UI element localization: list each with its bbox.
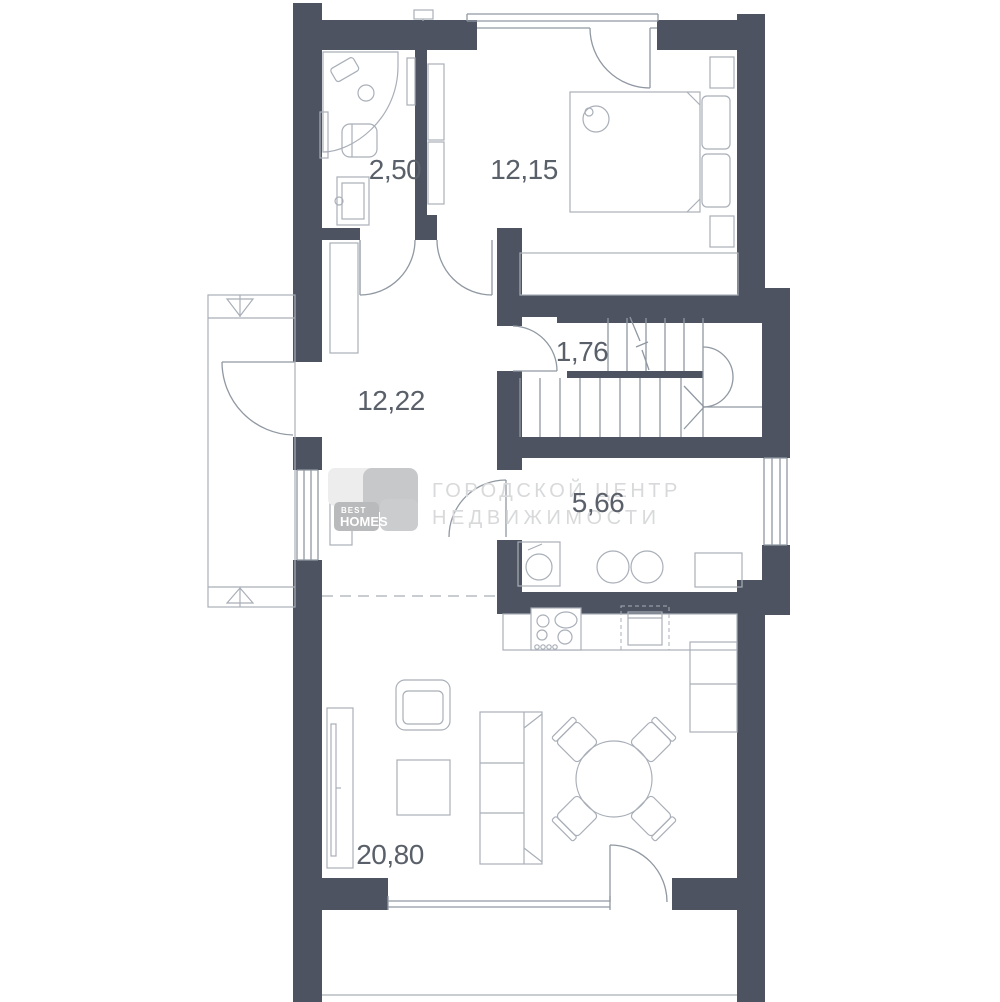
dining-chair — [630, 717, 677, 764]
living-room-window — [388, 896, 610, 910]
stair-direction-arrow — [684, 386, 704, 429]
sofa — [480, 712, 542, 864]
pillow — [702, 96, 730, 149]
room-label-bedroom: 12,15 — [490, 154, 558, 185]
balcony — [208, 295, 295, 607]
kitchen-counter — [503, 606, 737, 732]
bed — [570, 92, 700, 212]
vent-marker — [414, 10, 433, 19]
watermark: BEST HOMES ГОРОДСКОЙ ЦЕНТР НЕДВИЖИМОСТИ — [328, 468, 681, 531]
dining-chair — [630, 795, 677, 842]
bathroom-fixtures — [320, 52, 415, 225]
pillow — [702, 154, 730, 207]
shelf — [428, 142, 444, 204]
bedroom-door — [437, 240, 492, 295]
living-room-terrace-door — [610, 845, 667, 902]
room-label-bathroom: 2,50 — [369, 154, 422, 185]
shower-faucet — [330, 57, 360, 83]
shelf — [428, 64, 444, 140]
watermark-line1: ГОРОДСКОЙ ЦЕНТР — [432, 478, 681, 502]
stair-hall-door — [513, 326, 557, 371]
coffee-table — [397, 760, 450, 815]
balcony-window — [297, 470, 318, 560]
floor-plan-page: BEST HOMES ГОРОДСКОЙ ЦЕНТР НЕДВИЖИМОСТИ … — [0, 0, 1000, 1002]
room-label-hallway: 12,22 — [357, 385, 425, 416]
stair-turn-arc — [703, 347, 733, 407]
watermark-line2: НЕДВИЖИМОСТИ — [432, 507, 660, 529]
bedroom-balcony-door — [590, 28, 650, 88]
hall-wardrobe — [330, 243, 358, 353]
tv — [331, 724, 336, 856]
hall-balcony-door — [222, 362, 295, 435]
bathroom-door — [360, 240, 415, 295]
room-label-stair-hall: 1,76 — [556, 336, 609, 367]
nightstand — [710, 57, 734, 88]
kitchen-fixtures — [518, 542, 742, 587]
counter-l-section — [690, 642, 737, 732]
sink-bowl — [631, 551, 663, 583]
radiator — [407, 58, 415, 105]
stair-lower-treads — [520, 378, 681, 437]
sink-bowl — [597, 551, 629, 583]
dining-chair — [552, 717, 599, 764]
room-label-living-room: 20,80 — [356, 839, 424, 870]
logo-text-bottom: HOMES — [340, 514, 388, 529]
wardrobe — [520, 253, 738, 295]
floor-plan: BEST HOMES ГОРОДСКОЙ ЦЕНТР НЕДВИЖИМОСТИ … — [0, 0, 1000, 1002]
dining-chair — [552, 795, 599, 842]
fridge — [695, 553, 742, 587]
kitchen-window — [764, 458, 787, 545]
bedroom-furniture — [428, 57, 738, 295]
room-label-kitchen: 5,66 — [572, 487, 625, 518]
best-homes-logo-icon: BEST HOMES — [328, 468, 418, 531]
nightstand — [710, 216, 734, 247]
bed-decor — [583, 106, 609, 132]
